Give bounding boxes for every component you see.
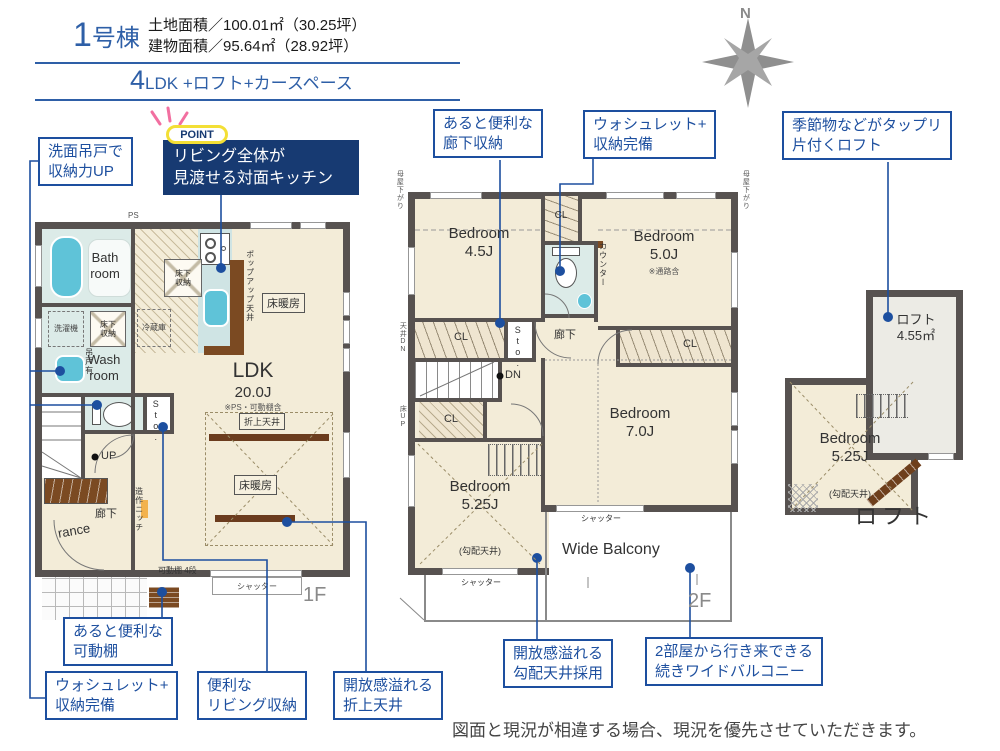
wall [616, 330, 620, 367]
stove [200, 233, 230, 265]
room-label-bath: Bath room [90, 250, 120, 281]
wall [170, 397, 174, 434]
sloped-ceiling-note-loft: (勾配天井) [829, 489, 871, 500]
plan-type: 4 LDK +ロフト+カースペース [130, 65, 353, 96]
toilet-2f-tank [552, 247, 580, 256]
fridge-label: 冷蔵庫 [137, 309, 171, 347]
stairs-2f [415, 358, 498, 398]
wall [545, 314, 598, 318]
window [442, 568, 518, 575]
room-label-bed525-loft: Bedroom 5.25J [820, 430, 881, 466]
kitchen-counter-edge [230, 260, 244, 348]
ceiling-beam-bottom [215, 515, 295, 522]
toilet-2f-bowl [555, 258, 577, 288]
stairs-1f-floor [42, 397, 81, 478]
stove-burner-icon [205, 238, 216, 249]
stove-burner-icon [221, 246, 226, 251]
floor-heating-label: 床暖房 [262, 293, 305, 313]
hall-2f-label: 廊下 [554, 329, 576, 342]
niche-label: 造作ニッチ [134, 487, 144, 532]
toilet-2f-basin [577, 293, 592, 309]
bathtub [50, 236, 83, 298]
movable-shelf-label: 可動棚 4段 [158, 566, 197, 576]
shutter-1f: シャッター [212, 577, 302, 595]
wall [483, 402, 487, 442]
room-label-bed50: Bedroom 5.0J [634, 228, 695, 264]
underfloor-storage-label: 床下 収納 [90, 311, 126, 347]
flyer-canvas: 1 号棟 土地面積／100.01㎡（30.25坪） 建物面積／95.64㎡（28… [0, 0, 1000, 751]
loft-crosshatch [788, 484, 818, 512]
loft-ladder-2f [488, 444, 543, 476]
wall [42, 393, 174, 397]
wall [616, 363, 735, 367]
point-rays-icon [152, 108, 187, 124]
callout-hall-storage: あると便利な 廊下収納 [433, 109, 543, 158]
callout-sloped: 開放感溢れる 勾配天井採用 [503, 639, 613, 688]
wall [541, 358, 545, 505]
window [676, 192, 716, 199]
window [35, 245, 42, 287]
floor-tag-1f: 1F [303, 583, 326, 607]
closet-label: CL [444, 413, 458, 426]
ldk-size: 20.0J [235, 384, 272, 402]
window [731, 392, 738, 426]
wall [541, 196, 545, 322]
coffered-ceiling-label: 折上天井 [239, 413, 285, 430]
wall [498, 358, 502, 402]
unit-title: 1 号棟 [73, 16, 140, 55]
window [731, 430, 738, 464]
callout-shelf: あると便利な 可動棚 [63, 617, 173, 666]
counter-label: カウンター [598, 242, 608, 287]
wall [578, 196, 582, 245]
window [606, 192, 664, 199]
room-label-bed525-2f: Bedroom 5.25J [450, 478, 511, 514]
window [343, 320, 350, 344]
storage-2f-label: Sto. [512, 325, 523, 369]
building-area: 建物面積／95.64㎡（28.92坪） [148, 38, 358, 56]
window [731, 252, 738, 308]
window [300, 222, 326, 229]
window [210, 570, 302, 577]
laundry-label: 洗濯機 [48, 311, 84, 347]
underfloor-storage-label: 床下 収納 [164, 259, 202, 297]
loft-ladder [856, 394, 908, 418]
popup-ceiling-label: ポップアップ天井 [245, 250, 255, 322]
window [35, 318, 42, 348]
wall [532, 318, 536, 362]
loft-tag: ロフト [855, 504, 936, 530]
wall [143, 397, 147, 434]
callout-balcony: 2部屋から行き来できる 続きワイドバルコニー [645, 637, 823, 686]
wall [131, 229, 135, 397]
hall-1f-label: 廊下 [95, 508, 117, 521]
point-box: リビング全体が 見渡せる対面キッチン [163, 140, 359, 195]
header-divider-bottom [35, 99, 460, 101]
disclaimer: 図面と現況が相違する場合、現況を優先させていただきます。 [452, 721, 926, 741]
loft-room-label: ロフト 4.55㎡ [896, 312, 935, 343]
window [343, 348, 350, 372]
wall [415, 438, 545, 442]
closet-label: CL [683, 338, 697, 351]
bed50-note: ※通路含 [649, 267, 680, 277]
callout-coffered: 開放感溢れる 折上天井 [333, 671, 443, 720]
hanging-cabinet-label: 吊戸有 [84, 348, 94, 375]
closet-label: CL [454, 331, 468, 344]
wall [545, 241, 594, 245]
balcony-label: Wide Balcony [562, 540, 660, 559]
window [556, 505, 644, 512]
stair-winder-steps [44, 478, 108, 504]
land-area: 土地面積／100.01㎡（30.25坪） [148, 17, 366, 35]
toilet-1f-tank [92, 403, 101, 425]
callout-living-storage: 便利な リビング収納 [197, 671, 307, 720]
window [343, 292, 350, 316]
compass-icon [702, 18, 794, 108]
header-divider-top [35, 62, 460, 64]
unit-suffix: 号棟 [92, 18, 140, 53]
window [430, 192, 482, 199]
wall [42, 303, 135, 307]
shutter-2f-label: シャッター [461, 578, 501, 588]
entrance-porch [42, 577, 147, 620]
callout-washlet-1f: ウォシュレット+ 収納完備 [45, 671, 178, 720]
window [928, 453, 954, 460]
wash-basin [55, 355, 85, 383]
callout-loft: 季節物などがタップリ 片付くロフト [782, 111, 952, 160]
wall [81, 397, 85, 478]
floor-heating-label: 床暖房 [234, 475, 277, 495]
kitchen-sink [203, 289, 229, 327]
wall [504, 322, 508, 358]
ps-label: PS [128, 211, 139, 221]
storage-1f-label: Sto. [150, 399, 161, 443]
wall [131, 397, 135, 570]
window [408, 455, 415, 507]
ceiling-beam-top [209, 434, 329, 441]
stairs-up-label: UP [101, 450, 116, 463]
plan-rest: LDK +ロフト+カースペース [145, 69, 353, 94]
ceiling-dn-label: 天井DN [398, 322, 406, 354]
callout-washlet-2f: ウォシュレット+ 収納完備 [583, 110, 716, 159]
plan-number: 4 [130, 65, 145, 96]
room-label-bed45: Bedroom 4.5J [449, 225, 510, 261]
kitchen-counter-return [204, 346, 244, 355]
window [343, 432, 350, 478]
callout-wash-cabinet: 洗面吊戸で 収納力UP [38, 137, 133, 186]
floor-up-label: 床UP [398, 405, 406, 429]
compass-north-label: N [740, 5, 751, 23]
window [408, 247, 415, 295]
closet-label: CL [555, 210, 568, 222]
moya-sagari-label: 母屋下がり [395, 170, 403, 210]
wall [415, 318, 545, 322]
wall [415, 398, 502, 402]
floor-tag-2f: 2F [688, 589, 711, 613]
unit-number: 1 [73, 16, 92, 55]
stove-burner-icon [205, 252, 216, 263]
shutter-2f-label: シャッター [581, 514, 621, 524]
movable-shelf-unit [149, 587, 179, 608]
closet-cl3 [620, 330, 731, 363]
room-label-bed70: Bedroom 7.0J [610, 405, 671, 441]
point-badge: POINT [166, 125, 228, 144]
stairs-dn-label: DN [505, 369, 521, 382]
window [250, 222, 292, 229]
ldk-note: ※PS・可動棚含 [224, 403, 281, 413]
sloped-ceiling-note-2f: (勾配天井) [459, 546, 501, 557]
room-label-ldk: LDK [233, 358, 274, 383]
moya-sagari-label: 母屋下がり [741, 170, 749, 210]
